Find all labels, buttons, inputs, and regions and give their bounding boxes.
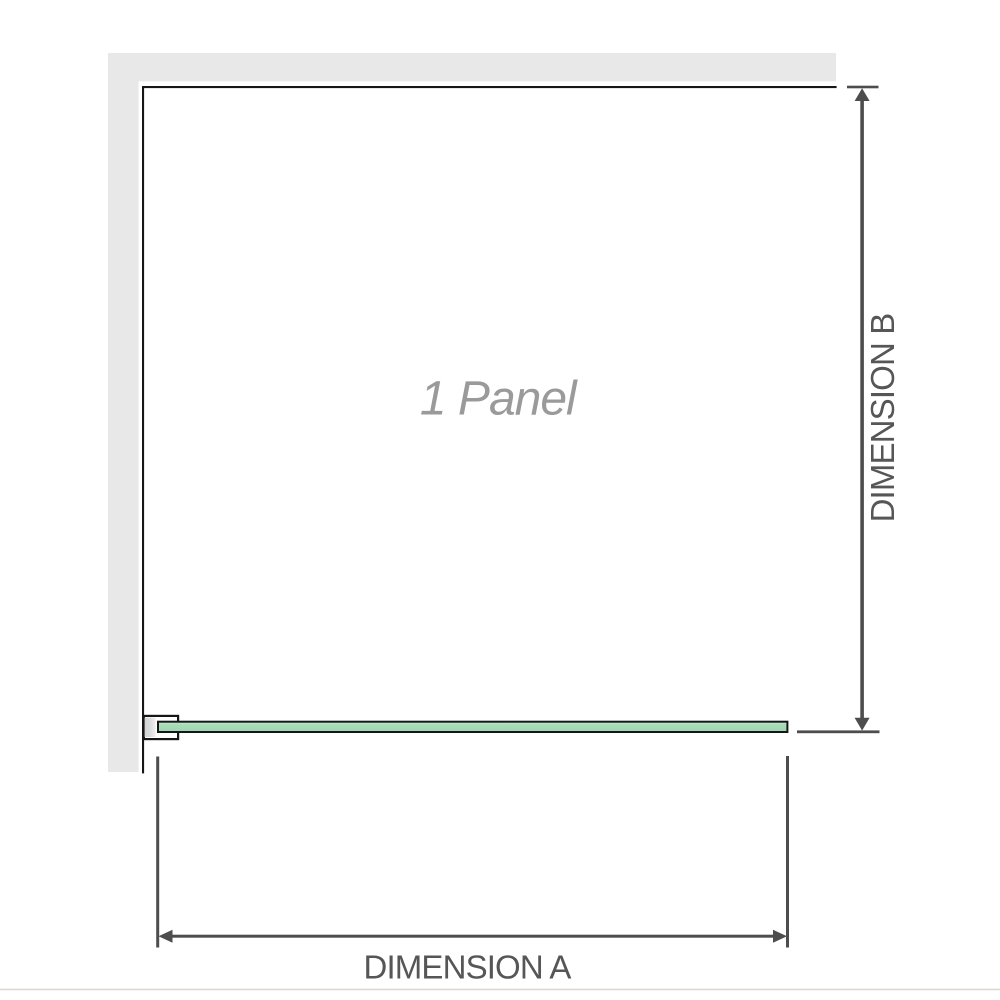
svg-text:DIMENSION B: DIMENSION B — [864, 314, 901, 523]
svg-text:DIMENSION A: DIMENSION A — [363, 948, 571, 985]
svg-text:1 Panel: 1 Panel — [420, 372, 578, 425]
